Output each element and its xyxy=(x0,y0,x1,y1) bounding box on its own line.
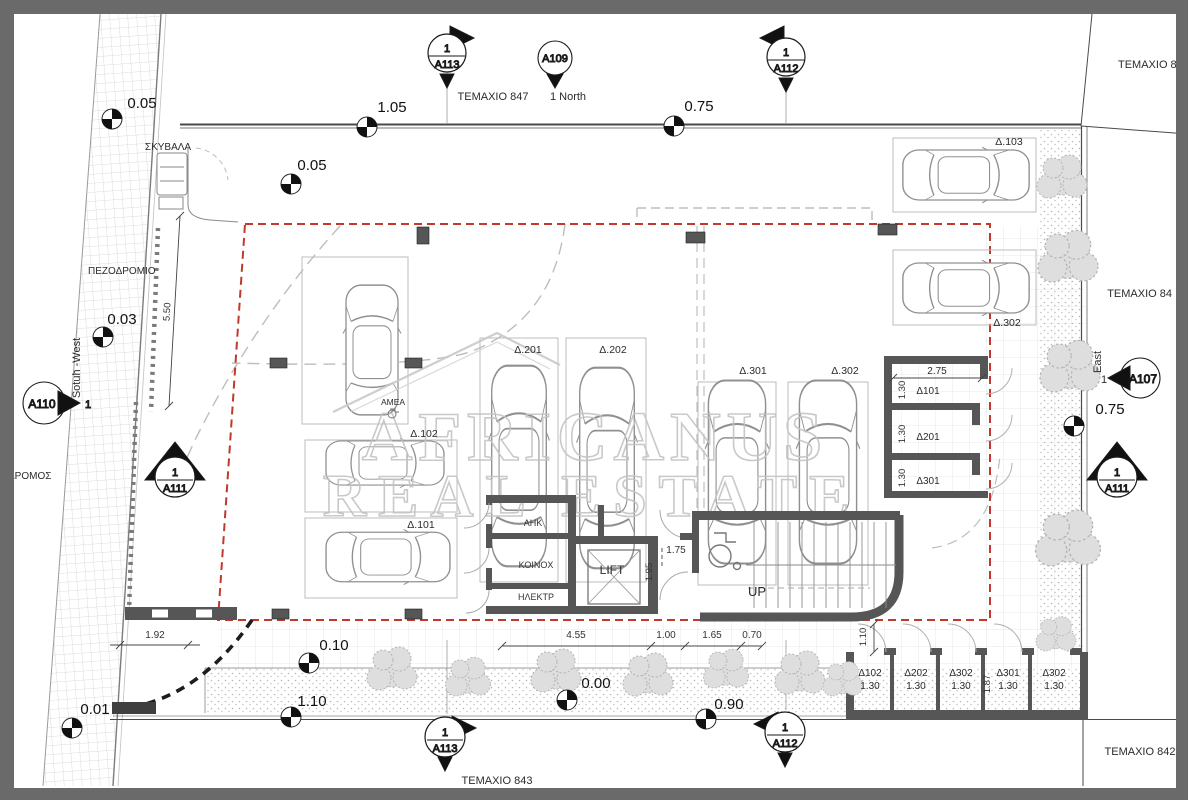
level-south: 0.90 xyxy=(714,696,743,713)
east-num: 1 xyxy=(1101,374,1107,386)
road-label: ΔΡΟΜΟΣ xyxy=(8,471,51,482)
storage-bottom-3: Δ302 xyxy=(949,668,973,679)
bay-label-amea: ΑΜΕΑ xyxy=(381,397,405,407)
svg-text:1.30: 1.30 xyxy=(1044,681,1064,692)
bay-label-301: Δ.301 xyxy=(739,365,767,377)
site-plan-drawing: AFRICANUS REAL ESTATE xyxy=(0,0,1188,800)
svg-text:1: 1 xyxy=(1114,467,1120,479)
svg-text:A113: A113 xyxy=(435,59,460,71)
plot-label-847: ΤΕΜΑΧΙΟ 847 xyxy=(458,91,529,103)
svg-text:A109: A109 xyxy=(542,53,568,65)
svg-text:1: 1 xyxy=(172,467,178,479)
level-inner: 0.05 xyxy=(297,157,326,174)
svg-text:1.30: 1.30 xyxy=(860,681,880,692)
bay-label-201: Δ.201 xyxy=(514,344,542,356)
dim-195: 1.95 xyxy=(644,563,655,582)
storage-bottom-2: Δ202 xyxy=(904,668,928,679)
bay-label-202: Δ.202 xyxy=(599,344,627,356)
level-east: 0.75 xyxy=(1095,401,1124,418)
dim-165: 1.65 xyxy=(702,630,722,641)
level-plant: 0.10 xyxy=(319,637,348,654)
dim-175: 1.75 xyxy=(666,545,686,556)
lift-label: LIFT xyxy=(600,563,625,577)
bay-label-103: Δ.103 xyxy=(995,136,1023,148)
level-gate: 1.10 xyxy=(297,693,326,710)
svg-text:1: 1 xyxy=(782,722,788,734)
storage-right-1: Δ101 xyxy=(916,386,940,397)
dim-187: 1.87 xyxy=(982,675,993,694)
svg-text:A112: A112 xyxy=(774,63,799,75)
svg-text:A107: A107 xyxy=(1129,372,1157,386)
dim-070: 0.70 xyxy=(742,630,762,641)
plot-label-84: ΤΕΜΑΧΙΟ 84 xyxy=(1107,288,1172,300)
up-label: UP xyxy=(748,584,766,599)
svg-text:1.30: 1.30 xyxy=(951,681,971,692)
storage-bottom-1: Δ102 xyxy=(858,668,882,679)
svg-text:A110: A110 xyxy=(28,397,55,411)
level-top-right: 0.75 xyxy=(684,98,713,115)
room-koinox: ΚΟΙΝΟΧ xyxy=(519,560,554,570)
bay-label-302e: Δ.302 xyxy=(993,317,1021,329)
svg-text:A111: A111 xyxy=(163,483,187,495)
svg-text:1.30: 1.30 xyxy=(897,469,908,488)
level-west: 0.03 xyxy=(107,311,136,328)
svg-text:A113: A113 xyxy=(433,743,458,755)
svg-text:A112: A112 xyxy=(773,738,798,750)
east-label: East xyxy=(1092,351,1104,373)
svg-text:A111: A111 xyxy=(1105,483,1129,495)
level-road: 0.01 xyxy=(80,701,109,718)
svg-text:1: 1 xyxy=(444,43,450,55)
dim-100: 1.00 xyxy=(656,630,676,641)
plot-label-843: ΤΕΜΑΧΙΟ 843 xyxy=(462,775,533,787)
storage-bottom-4: Δ301 xyxy=(996,668,1020,679)
dim-275: 2.75 xyxy=(927,366,947,377)
svg-text:1.30: 1.30 xyxy=(897,381,908,400)
storage-right-3: Δ301 xyxy=(916,476,940,487)
room-ahk: ΑΗΚ xyxy=(524,518,543,528)
svg-text:1.30: 1.30 xyxy=(998,681,1018,692)
level-zero: 0.00 xyxy=(581,675,610,692)
dim-192: 1.92 xyxy=(145,630,165,641)
svg-text:1.30: 1.30 xyxy=(897,425,908,444)
bay-label-101: Δ.101 xyxy=(407,519,435,531)
storage-bottom-5: Δ302 xyxy=(1042,668,1066,679)
room-ilektr: ΗΛΕΚΤΡ xyxy=(518,592,554,602)
dim-455: 4.55 xyxy=(566,630,586,641)
dim-550: 5.50 xyxy=(162,302,174,321)
bay-label-102: Δ.102 xyxy=(410,428,438,440)
svg-text:1: 1 xyxy=(783,47,789,59)
svg-text:1: 1 xyxy=(85,399,91,411)
svg-text:1.30: 1.30 xyxy=(906,681,926,692)
level-top-left: 0.05 xyxy=(127,95,156,112)
level-top-mid: 1.05 xyxy=(377,99,406,116)
bay-label-302: Δ.302 xyxy=(831,365,859,377)
site-plan-page: AFRICANUS REAL ESTATE xyxy=(0,0,1188,800)
garbage-label: ΣΚΥΒΑΛΑ xyxy=(145,142,192,153)
plot-label-842: ΤΕΜΑΧΙΟ 842 xyxy=(1105,746,1176,758)
svg-text:1: 1 xyxy=(442,727,448,739)
dim-110: 1.10 xyxy=(858,628,869,647)
sidewalk-label: ΠΕΖΟΔΡΟΜΙΟ xyxy=(88,266,156,277)
southwest-label: Sotuh -West xyxy=(71,338,83,398)
storage-right-2: Δ201 xyxy=(916,432,940,443)
north-label: 1 North xyxy=(550,91,586,103)
